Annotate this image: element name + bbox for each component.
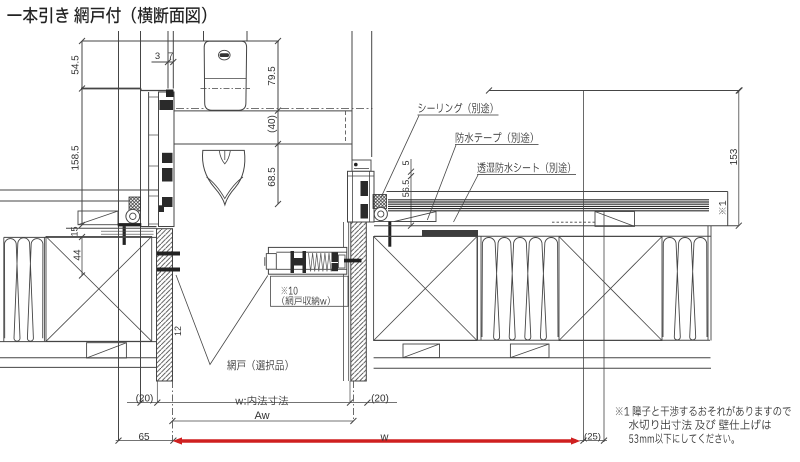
svg-text:3: 3 bbox=[155, 51, 160, 62]
svg-text:(20): (20) bbox=[371, 394, 389, 405]
svg-text:79.5: 79.5 bbox=[267, 66, 278, 86]
svg-text:(40): (40) bbox=[267, 115, 278, 133]
svg-text:w: w bbox=[380, 432, 389, 444]
svg-text:56.5: 56.5 bbox=[401, 180, 411, 198]
svg-text:68.5: 68.5 bbox=[267, 167, 278, 187]
svg-text:54.5: 54.5 bbox=[71, 55, 82, 75]
svg-text:(20): (20) bbox=[136, 394, 154, 405]
svg-text:5: 5 bbox=[401, 160, 411, 165]
svg-text:65: 65 bbox=[138, 432, 150, 443]
svg-text:12: 12 bbox=[173, 326, 183, 336]
svg-text:15: 15 bbox=[70, 226, 80, 236]
svg-text:(25): (25) bbox=[584, 432, 601, 443]
svg-text:44: 44 bbox=[73, 249, 84, 261]
svg-text:Aw: Aw bbox=[254, 410, 269, 422]
svg-text:7: 7 bbox=[168, 51, 173, 62]
svg-text:158.5: 158.5 bbox=[71, 145, 82, 170]
svg-text:153: 153 bbox=[729, 148, 740, 165]
